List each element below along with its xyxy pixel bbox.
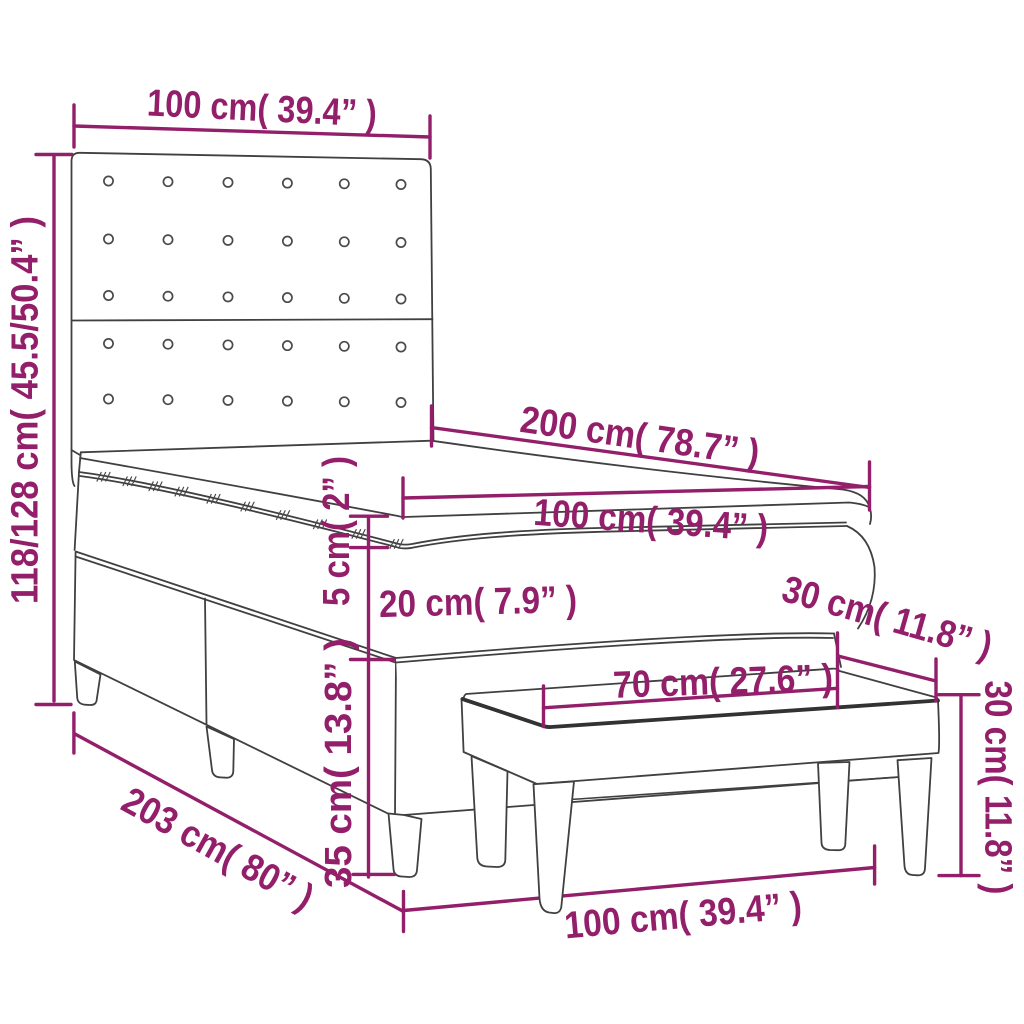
svg-text:118/128 cm( 45.5/50.4” ): 118/128 cm( 45.5/50.4” )	[5, 216, 47, 604]
svg-text:5 cm( 2” ): 5 cm( 2” )	[316, 456, 358, 606]
svg-text:20 cm( 7.9” ): 20 cm( 7.9” )	[379, 579, 578, 626]
svg-text:30 cm( 11.8” ): 30 cm( 11.8” )	[977, 681, 1019, 895]
svg-text:70 cm( 27.6” ): 70 cm( 27.6” )	[612, 657, 833, 707]
svg-text:35 cm( 13.8” ): 35 cm( 13.8” )	[318, 638, 360, 888]
